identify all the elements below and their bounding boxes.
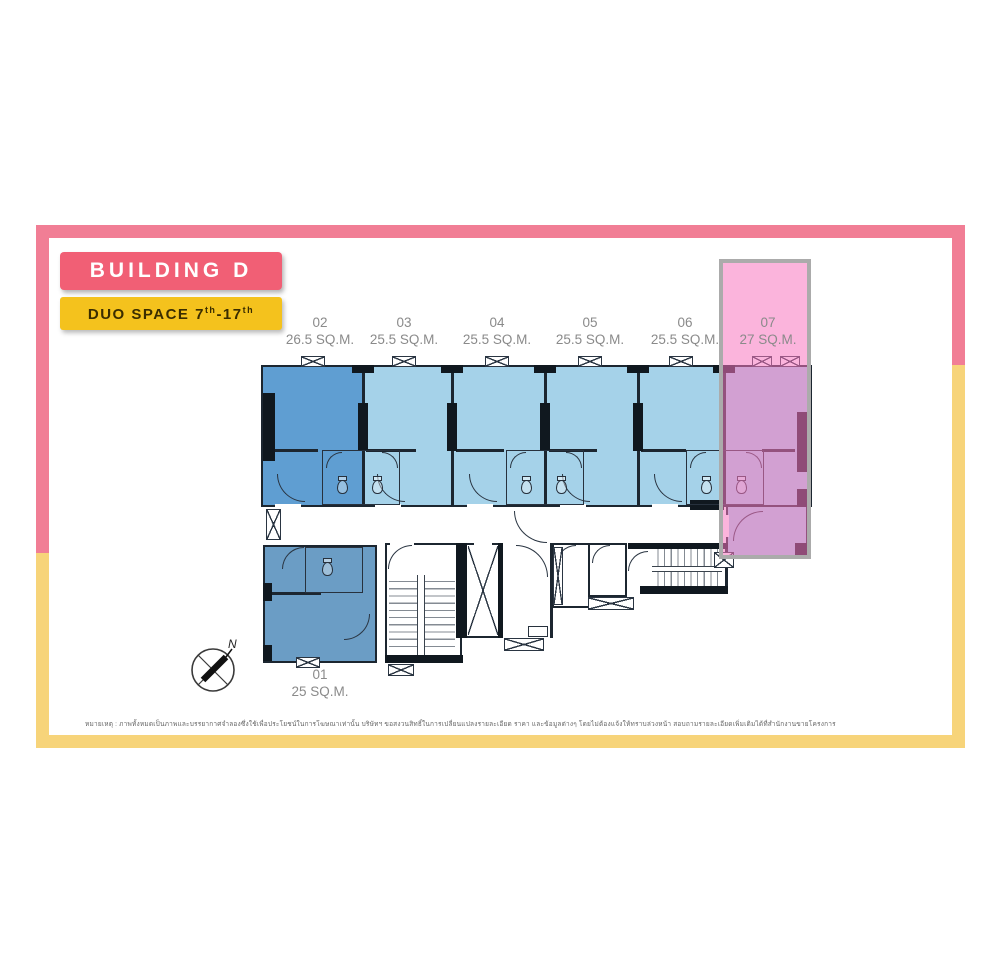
window-icon — [266, 509, 281, 540]
door-arc — [628, 551, 648, 571]
toilet-icon — [337, 480, 348, 494]
door-arc — [514, 511, 547, 543]
compass-icon: N — [186, 636, 244, 696]
wall — [385, 655, 463, 663]
window-icon — [485, 356, 509, 367]
unit-07-highlight[interactable] — [719, 259, 811, 559]
door-gap — [467, 504, 493, 508]
window-icon — [578, 356, 602, 367]
unit-number: 01 — [278, 666, 362, 683]
column — [633, 403, 643, 451]
wall — [462, 543, 467, 638]
unit-label-03[interactable]: 03 25.5 SQ.M. — [362, 314, 446, 348]
column — [263, 645, 272, 661]
column — [540, 403, 550, 451]
column — [447, 403, 457, 451]
elevator-x-icon — [468, 546, 498, 635]
window-icon — [528, 626, 548, 637]
window-icon — [669, 356, 693, 367]
unit-area: 25.5 SQ.M. — [455, 331, 539, 348]
wall — [498, 543, 503, 638]
window-icon — [388, 664, 414, 676]
unit-number: 02 — [278, 314, 362, 331]
wall — [641, 449, 686, 452]
unit-area: 25.5 SQ.M. — [362, 331, 446, 348]
unit-area: 26.5 SQ.M. — [278, 331, 362, 348]
column — [263, 583, 272, 601]
compass-north-label: N — [228, 637, 237, 651]
column — [358, 403, 368, 451]
shaft-icon — [553, 547, 563, 605]
window-icon — [301, 356, 325, 367]
column — [627, 365, 649, 373]
bathroom — [305, 547, 363, 593]
window-icon — [504, 638, 544, 651]
stair-rail — [417, 575, 425, 655]
page: { "header": { "building_label": "BUILDIN… — [0, 0, 1000, 958]
toilet-icon — [521, 480, 532, 494]
toilet-icon — [556, 480, 567, 494]
unit-number: 06 — [643, 314, 727, 331]
wall — [640, 586, 728, 594]
column — [352, 365, 374, 373]
toilet-icon — [372, 480, 383, 494]
column — [534, 365, 556, 373]
wall — [456, 449, 504, 452]
unit-area: 27 SQ.M. — [726, 331, 810, 348]
disclaimer-text: หมายเหตุ : ภาพทั้งหมดเป็นภาพและบรรยากาศจ… — [85, 719, 918, 729]
unit-label-07[interactable]: 07 27 SQ.M. — [726, 314, 810, 348]
unit-number: 07 — [726, 314, 810, 331]
unit-label-04[interactable]: 04 25.5 SQ.M. — [455, 314, 539, 348]
unit-number: 03 — [362, 314, 446, 331]
floor-plan: N หมายเหตุ : ภาพทั้งหมดเป็นภาพและบรรยากา… — [0, 0, 1000, 958]
column — [263, 393, 275, 461]
unit-number: 04 — [455, 314, 539, 331]
column — [441, 365, 463, 373]
unit-label-02[interactable]: 02 26.5 SQ.M. — [278, 314, 362, 348]
door-arc — [516, 545, 548, 577]
unit-label-01[interactable]: 01 25 SQ.M. — [278, 666, 362, 700]
door-gap — [474, 541, 492, 545]
unit-label-05[interactable]: 05 25.5 SQ.M. — [548, 314, 632, 348]
unit-label-06[interactable]: 06 25.5 SQ.M. — [643, 314, 727, 348]
unit-area: 25.5 SQ.M. — [548, 331, 632, 348]
door-gap — [275, 504, 301, 508]
shaft-icon — [588, 597, 634, 610]
window-icon — [392, 356, 416, 367]
unit-number: 05 — [548, 314, 632, 331]
unit-area: 25 SQ.M. — [278, 683, 362, 700]
toilet-icon — [322, 562, 333, 576]
toilet-icon — [701, 480, 712, 494]
wall — [625, 549, 627, 592]
door-gap — [652, 504, 678, 508]
stair-rail — [652, 566, 722, 572]
unit-area: 25.5 SQ.M. — [643, 331, 727, 348]
